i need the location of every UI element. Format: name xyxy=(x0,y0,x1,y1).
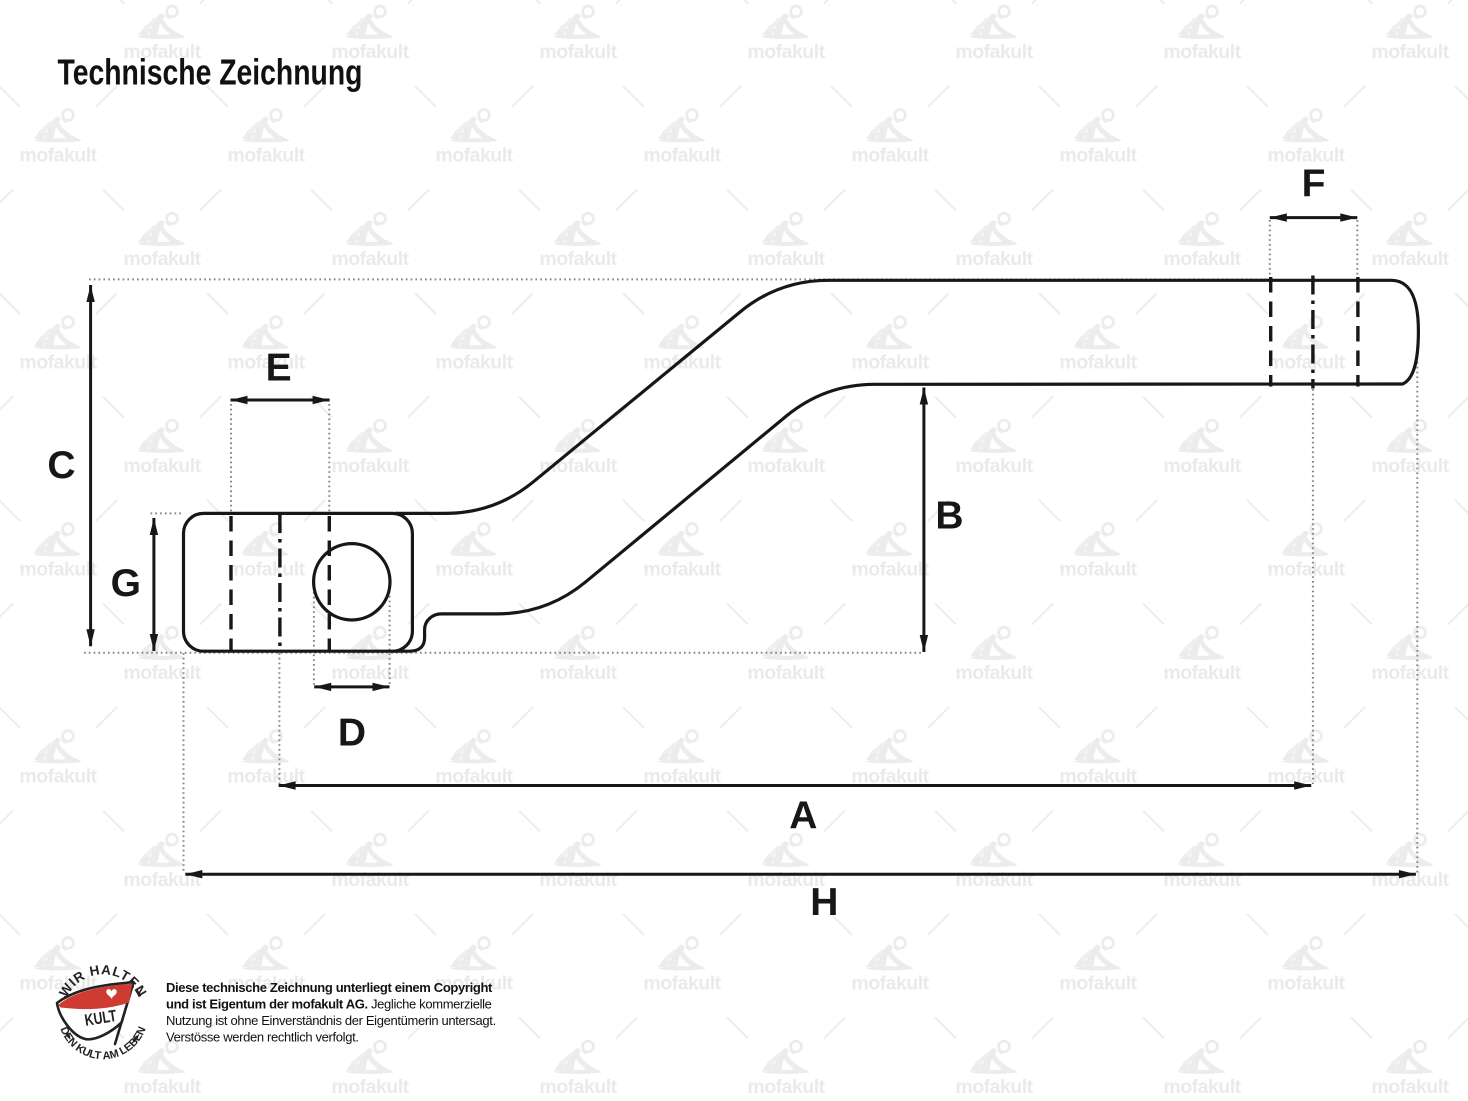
svg-text:E: E xyxy=(266,347,292,390)
svg-text:B: B xyxy=(935,495,963,538)
svg-text:D: D xyxy=(338,712,366,755)
svg-text:F: F xyxy=(1302,162,1326,205)
svg-text:Nutzung ist ohne Einverständni: Nutzung ist ohne Einverständnis der Eige… xyxy=(166,1013,496,1028)
svg-text:H: H xyxy=(810,881,838,924)
svg-text:A: A xyxy=(789,795,817,838)
svg-text:Verstösse werden rechtlich ver: Verstösse werden rechtlich verfolgt. xyxy=(166,1030,359,1045)
svg-text:Technische Zeichnung: Technische Zeichnung xyxy=(58,52,363,93)
svg-text:und ist Eigentum der mofakult: und ist Eigentum der mofakult AG. Jeglic… xyxy=(166,997,492,1012)
svg-text:Diese technische Zeichnung unt: Diese technische Zeichnung unterliegt ei… xyxy=(166,980,493,995)
svg-text:G: G xyxy=(111,562,141,605)
svg-text:C: C xyxy=(47,444,75,487)
